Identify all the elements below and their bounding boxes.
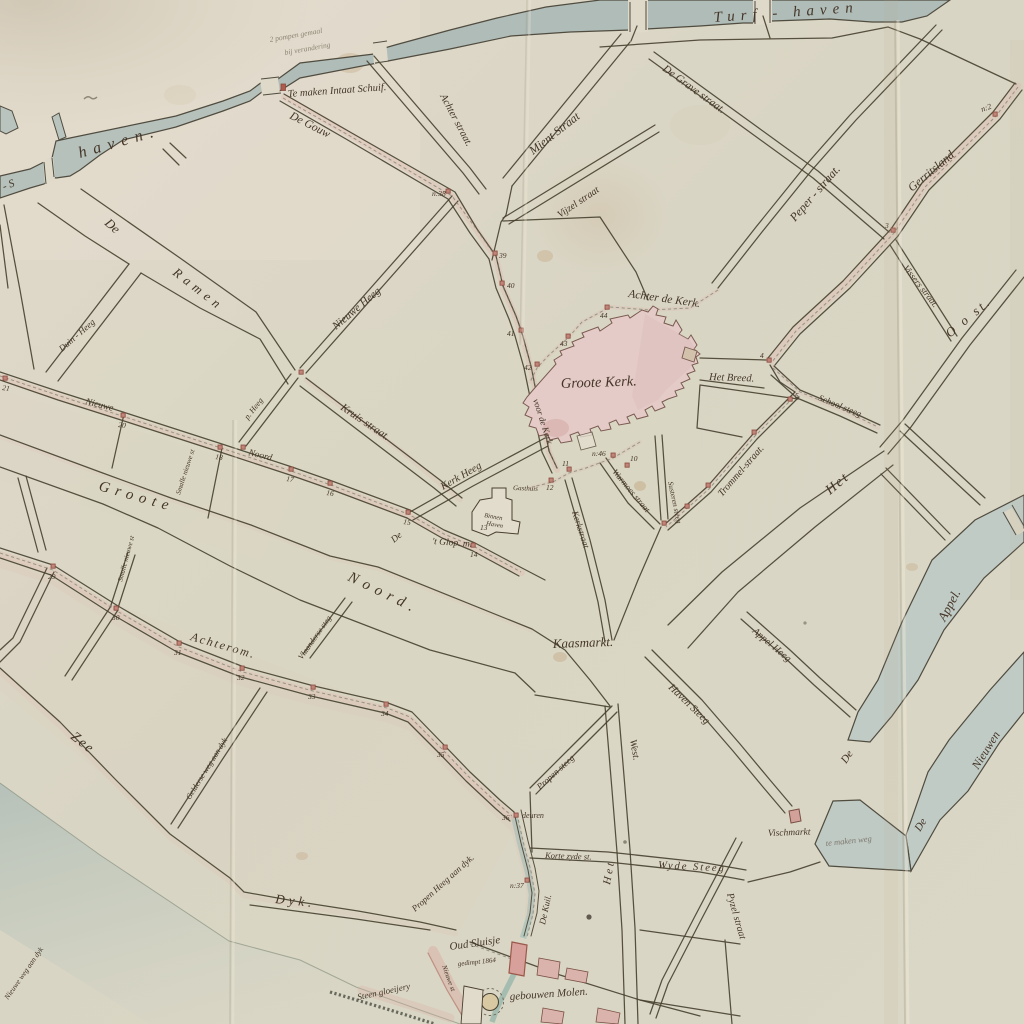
svg-text:n:37: n:37 — [510, 881, 524, 890]
svg-text:15: 15 — [403, 517, 412, 527]
svg-text:41: 41 — [507, 329, 515, 338]
svg-text:Groote Kerk.: Groote Kerk. — [561, 373, 637, 392]
svg-text:35: 35 — [436, 750, 445, 759]
svg-text:11: 11 — [562, 459, 569, 468]
svg-text:33: 33 — [307, 692, 316, 701]
svg-text:39: 39 — [498, 251, 507, 260]
svg-text:44: 44 — [600, 311, 608, 320]
svg-text:43: 43 — [560, 339, 568, 348]
svg-text:10: 10 — [630, 454, 638, 463]
svg-text:20: 20 — [118, 420, 127, 430]
svg-text:34: 34 — [380, 709, 389, 718]
svg-text:42: 42 — [524, 363, 532, 372]
svg-text:Gasthuis: Gasthuis — [513, 484, 538, 493]
svg-text:Kaasmarkt.: Kaasmarkt. — [552, 634, 614, 651]
svg-text:18: 18 — [215, 452, 224, 462]
svg-text:13: 13 — [480, 523, 488, 532]
svg-text:n:46: n:46 — [592, 449, 606, 458]
svg-text:17: 17 — [286, 474, 295, 484]
svg-text:16: 16 — [326, 488, 335, 498]
svg-text:40: 40 — [507, 281, 515, 290]
svg-text:29: 29 — [48, 572, 56, 581]
svg-text:4: 4 — [760, 351, 764, 360]
svg-text:deuren: deuren — [522, 811, 544, 820]
svg-text:32: 32 — [236, 673, 245, 682]
svg-text:21: 21 — [2, 383, 11, 393]
svg-text:n:38: n:38 — [432, 189, 446, 198]
svg-text:36: 36 — [501, 813, 510, 822]
svg-text:12: 12 — [546, 483, 554, 492]
svg-text:Het Breed.: Het Breed. — [708, 372, 754, 385]
svg-text:Vischmarkt: Vischmarkt — [768, 828, 811, 839]
svg-text:Korte zyde st.: Korte zyde st. — [544, 850, 592, 862]
svg-text:30: 30 — [111, 613, 120, 622]
svg-text:5: 5 — [795, 391, 799, 400]
svg-text:14: 14 — [470, 550, 478, 559]
svg-text:31: 31 — [173, 648, 182, 657]
